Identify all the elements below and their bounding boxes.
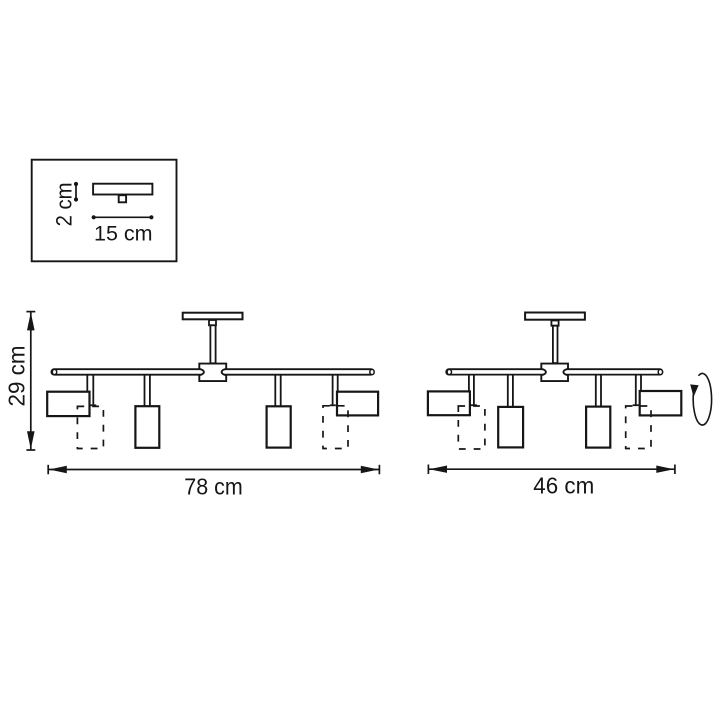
svg-text:15 cm: 15 cm — [94, 221, 153, 245]
svg-text:2 cm: 2 cm — [52, 182, 77, 226]
svg-text:46 cm: 46 cm — [533, 473, 594, 499]
svg-text:78 cm: 78 cm — [184, 473, 243, 499]
svg-text:29 cm: 29 cm — [4, 346, 30, 407]
